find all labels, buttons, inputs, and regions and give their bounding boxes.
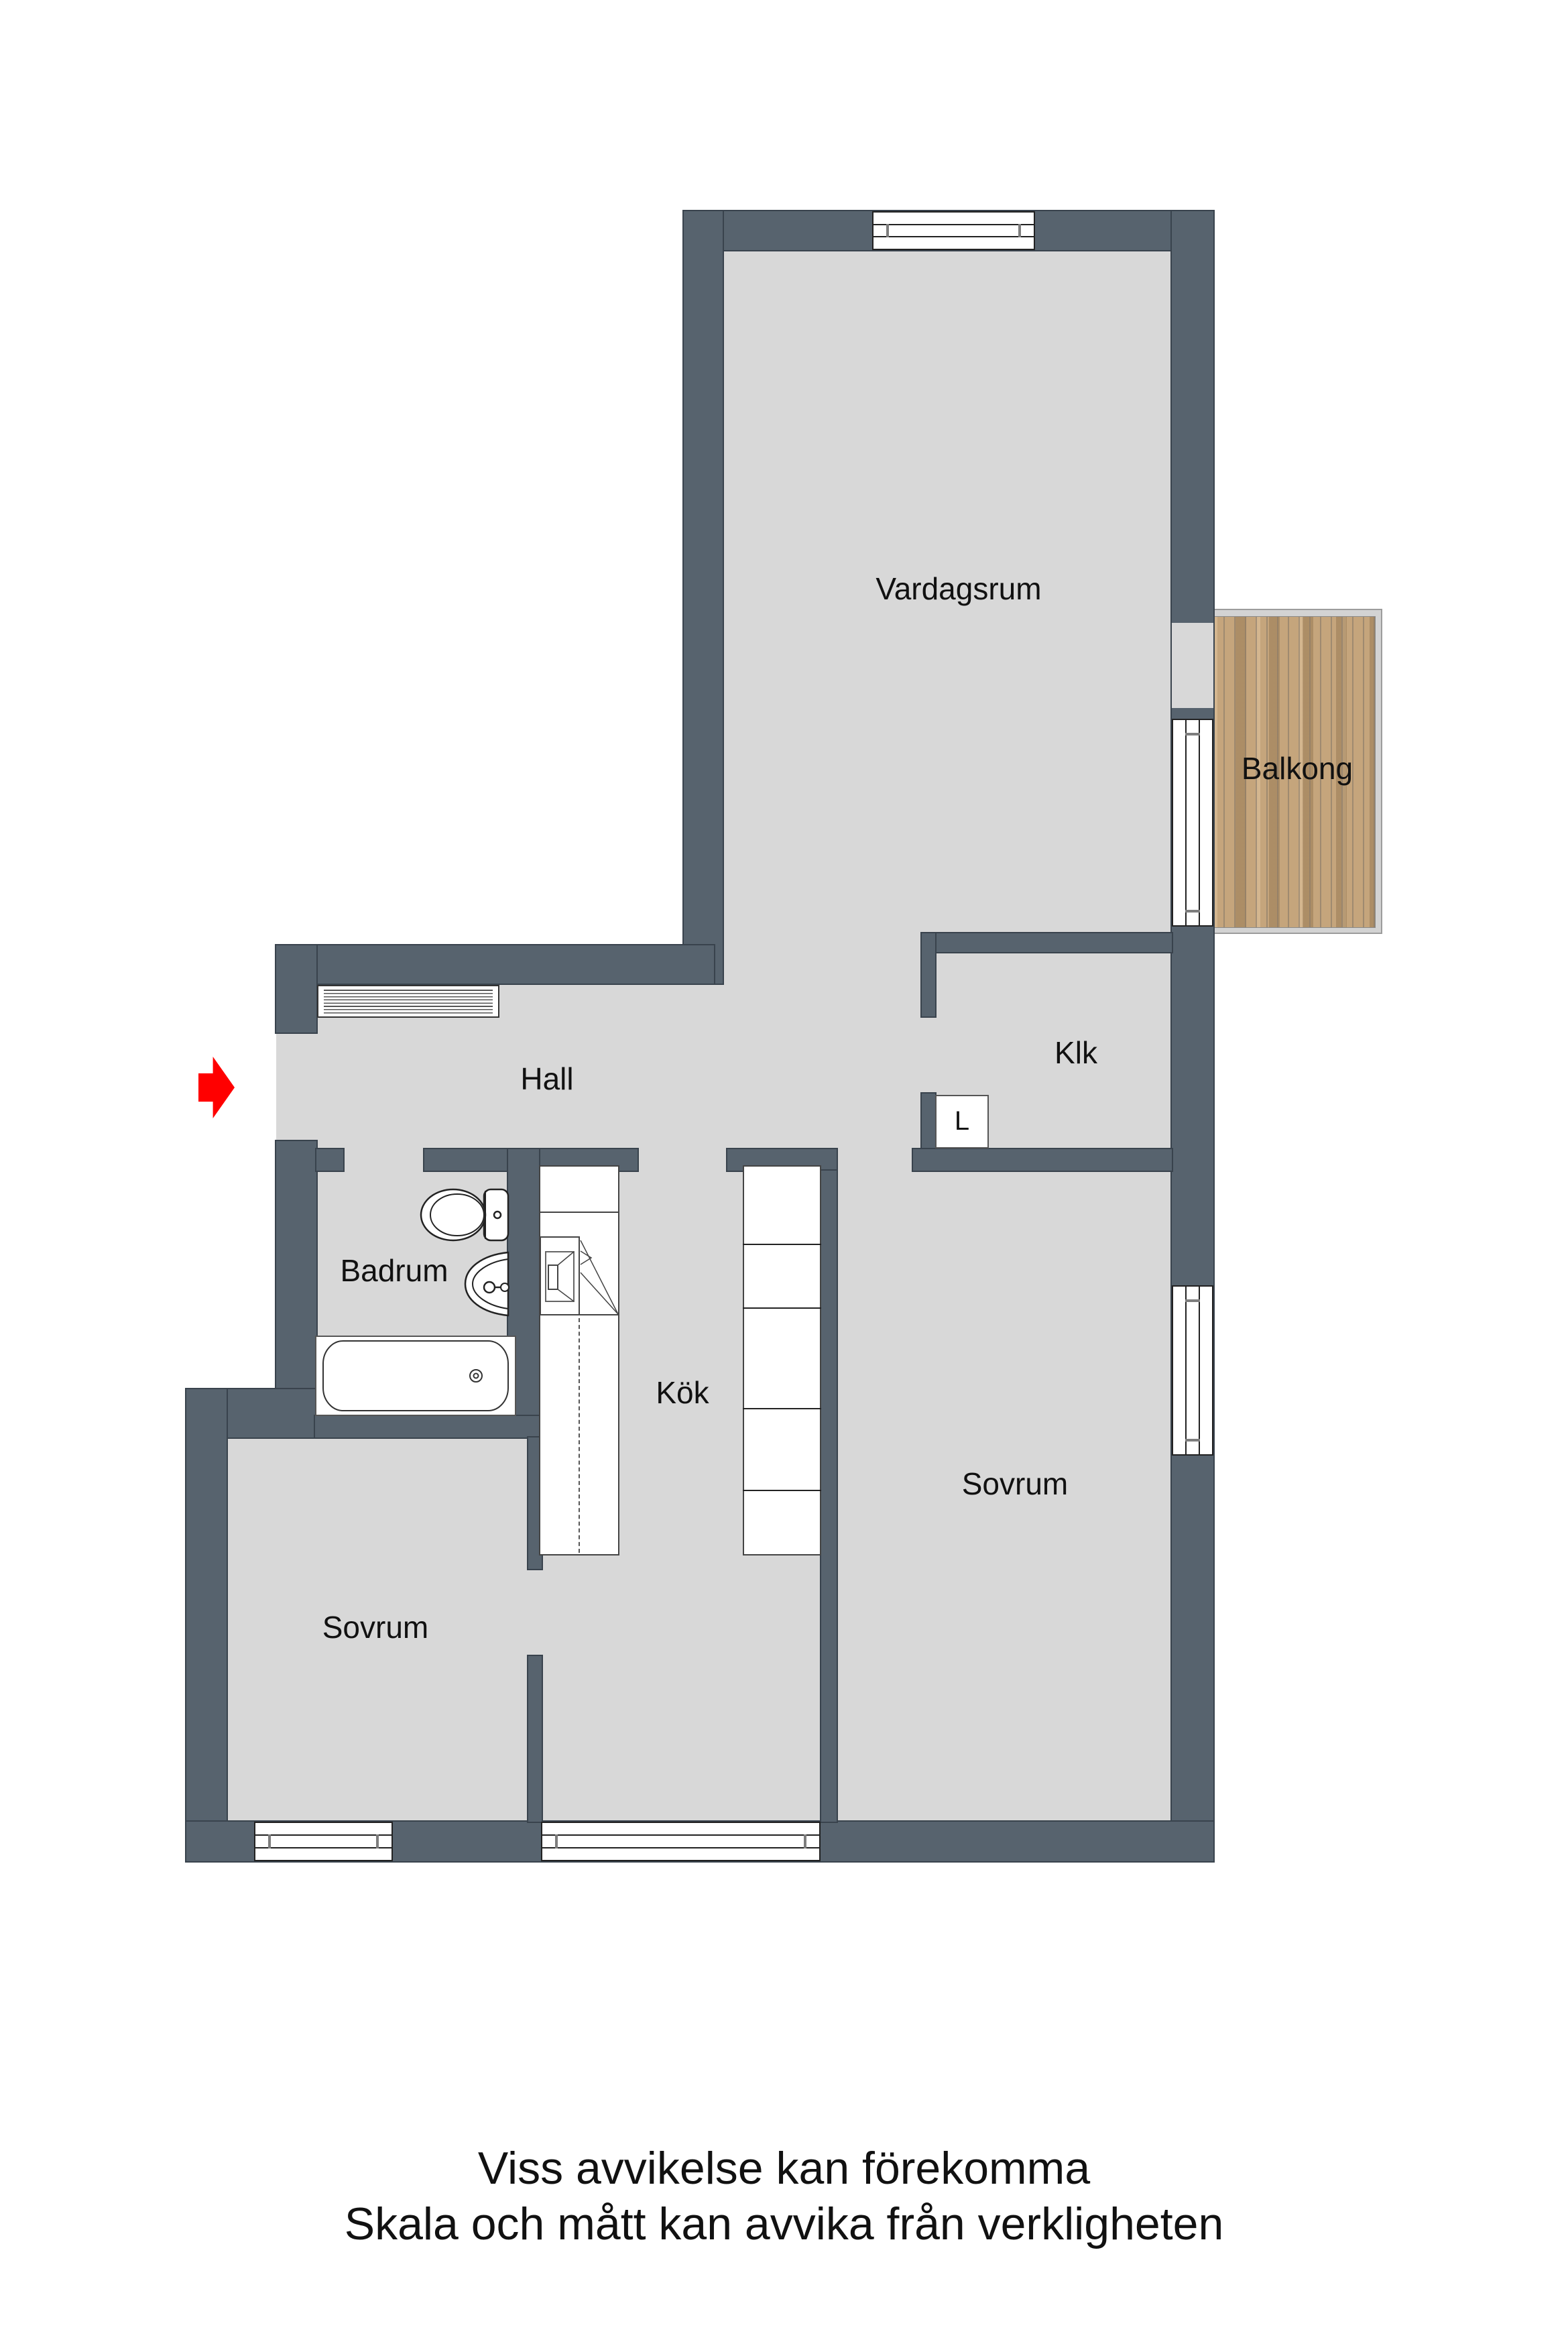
floor-plan: Balkong: [0, 0, 1568, 2352]
wardrobe-icon: [317, 985, 499, 1018]
window-tick: [376, 1834, 379, 1848]
balcony: Balkong: [1212, 609, 1382, 934]
stove-icon: [539, 1211, 619, 1315]
window-tick: [1185, 1439, 1200, 1442]
window-sovrum-right: [1172, 1285, 1213, 1456]
label-balkong: Balkong: [1213, 751, 1381, 786]
bathtub-icon: [315, 1336, 516, 1416]
closet-l-box: L: [935, 1095, 989, 1149]
floor-vardagsrum: [723, 250, 1172, 1171]
balcony-glass-opening: [1172, 623, 1213, 708]
entrance-arrow-icon: [198, 1057, 235, 1118]
wall-badrum-bottom: [315, 1416, 542, 1437]
wall-hall-top: [276, 945, 714, 984]
kitchen-cabinets: [743, 1165, 821, 1555]
window-vardagsrum-top: [872, 211, 1035, 250]
cabinet-divider: [743, 1490, 821, 1491]
window-frame: [255, 1834, 391, 1848]
door-tick: [1185, 733, 1200, 736]
window-frame: [542, 1834, 819, 1848]
label-closet-l: L: [955, 1106, 969, 1136]
window-kok-bottom: [541, 1822, 821, 1861]
label-hall: Hall: [413, 1061, 681, 1096]
window-tick: [268, 1834, 271, 1848]
cabinet-divider: [743, 1244, 821, 1245]
wall-band-klk-bottom: [913, 1149, 1172, 1171]
window-tick: [804, 1834, 806, 1848]
cabinet-divider: [743, 1307, 821, 1309]
door-tick: [1185, 910, 1200, 913]
window-sovrum-left-bottom: [254, 1822, 393, 1861]
balcony-door: [1172, 719, 1213, 927]
wall-exterior-left-vardagsrum: [684, 211, 723, 984]
window-frame: [1185, 1287, 1200, 1454]
label-kok: Kök: [548, 1375, 817, 1410]
window-tick: [1018, 224, 1021, 238]
label-vardagsrum: Vardagsrum: [825, 571, 1093, 606]
wall-kok-sovrum: [821, 1171, 837, 1822]
wall-klk-left-lower: [922, 1094, 935, 1149]
label-sovrum-right: Sovrum: [881, 1466, 1149, 1501]
wall-sovrumleft-kok-lower: [528, 1656, 542, 1822]
wall-exterior-left-lower: [186, 1389, 227, 1861]
wall-band-badrum-left: [316, 1149, 343, 1171]
disclaimer-line-2: Skala och mått kan avvika från verklighe…: [0, 2198, 1568, 2249]
label-klk: Klk: [942, 1035, 1210, 1070]
window-tick: [555, 1834, 558, 1848]
dishwasher-dashed-line: [579, 1318, 580, 1553]
wall-klk-left-upper: [922, 933, 935, 1016]
door-frame: [1185, 720, 1200, 925]
wall-entry-upper: [276, 945, 316, 1033]
toilet-icon: [420, 1188, 509, 1242]
window-tick: [886, 224, 889, 238]
label-badrum: Badrum: [260, 1253, 528, 1288]
window-frame: [873, 224, 1034, 238]
disclaimer-line-1: Viss avvikelse kan förekomma: [0, 2143, 1568, 2194]
wall-klk-top: [922, 933, 1172, 952]
floor-entrance-recess: [276, 1033, 316, 1141]
wardrobe-stripes: [324, 988, 493, 1015]
label-sovrum-left: Sovrum: [241, 1610, 509, 1645]
window-tick: [1185, 1299, 1200, 1302]
